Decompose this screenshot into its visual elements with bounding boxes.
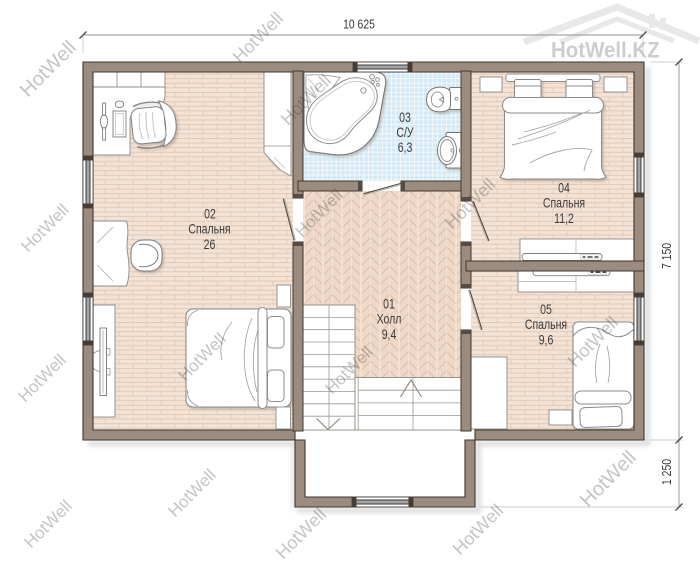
svg-text:6,3: 6,3	[398, 140, 413, 156]
svg-text:1 250: 1 250	[660, 459, 674, 485]
svg-text:Спальня: Спальня	[543, 195, 585, 211]
svg-text:С/У: С/У	[396, 125, 413, 141]
svg-text:Холл: Холл	[377, 311, 402, 327]
svg-text:26: 26	[204, 237, 216, 253]
svg-text:9,6: 9,6	[539, 332, 554, 348]
svg-text:7 150: 7 150	[660, 243, 674, 269]
svg-text:11,2: 11,2	[554, 211, 574, 227]
svg-text:03: 03	[399, 110, 411, 126]
svg-text:9,4: 9,4	[382, 327, 397, 343]
svg-text:04: 04	[558, 180, 570, 196]
svg-text:05: 05	[540, 302, 552, 318]
svg-text:Спальня: Спальня	[188, 221, 230, 237]
svg-text:01: 01	[383, 296, 395, 312]
svg-text:Спальня: Спальня	[525, 317, 567, 333]
svg-text:10 625: 10 625	[343, 17, 375, 31]
svg-text:HotWell.KZ: HotWell.KZ	[551, 38, 660, 63]
svg-text:02: 02	[204, 206, 216, 222]
